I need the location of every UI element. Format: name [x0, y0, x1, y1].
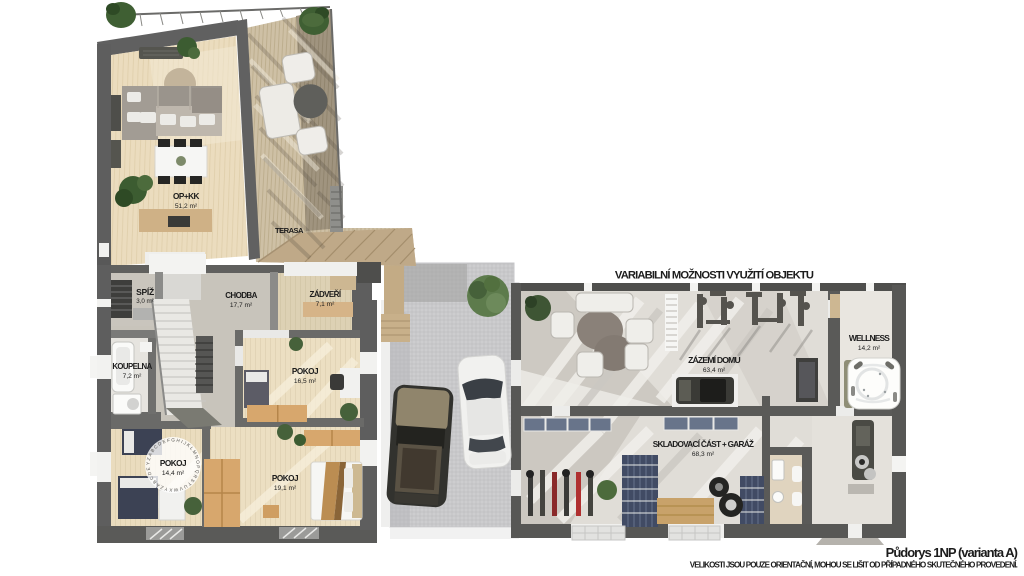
- svg-text:SKLADOVACÍ ČÁST + GARÁŽ: SKLADOVACÍ ČÁST + GARÁŽ: [653, 438, 754, 449]
- svg-text:TERASA: TERASA: [275, 226, 304, 235]
- svg-text:14,4 m²: 14,4 m²: [162, 470, 185, 477]
- svg-text:ZÁDVEŘÍ: ZÁDVEŘÍ: [310, 290, 342, 299]
- svg-text:Půdorys 1NP (varianta A): Půdorys 1NP (varianta A): [886, 545, 1018, 560]
- svg-text:51,2 m²: 51,2 m²: [175, 203, 198, 210]
- svg-text:CHODBA: CHODBA: [225, 291, 257, 300]
- svg-text:WELLNESS: WELLNESS: [849, 333, 890, 343]
- svg-text:7,1 m²: 7,1 m²: [316, 301, 335, 308]
- svg-text:17,7 m²: 17,7 m²: [230, 302, 253, 309]
- svg-text:SPÍŽ: SPÍŽ: [136, 286, 154, 297]
- svg-text:68,3 m²: 68,3 m²: [692, 451, 715, 458]
- svg-text:14,2 m²: 14,2 m²: [858, 345, 881, 352]
- svg-text:VELIKOSTI JSOU POUZE ORIENTAČN: VELIKOSTI JSOU POUZE ORIENTAČNÍ, MOHOU S…: [690, 561, 1018, 570]
- svg-text:KOUPELNA: KOUPELNA: [112, 362, 152, 371]
- svg-text:ZÁZEMÍ DOMU: ZÁZEMÍ DOMU: [688, 355, 740, 365]
- svg-text:3,0 m²: 3,0 m²: [136, 298, 154, 305]
- svg-text:VARIABILNÍ MOŽNOSTI VYUŽITÍ OB: VARIABILNÍ MOŽNOSTI VYUŽITÍ OBJEKTU: [615, 269, 814, 282]
- svg-text:7,2 m²: 7,2 m²: [123, 373, 142, 380]
- svg-text:OP+KK: OP+KK: [173, 192, 200, 201]
- svg-text:POKOJ: POKOJ: [160, 459, 186, 468]
- svg-text:POKOJ: POKOJ: [272, 474, 298, 483]
- svg-text:63,4 m²: 63,4 m²: [703, 367, 726, 374]
- svg-text:19,1 m²: 19,1 m²: [274, 485, 297, 492]
- svg-text:16,5 m²: 16,5 m²: [294, 378, 317, 385]
- svg-text:POKOJ: POKOJ: [292, 367, 318, 376]
